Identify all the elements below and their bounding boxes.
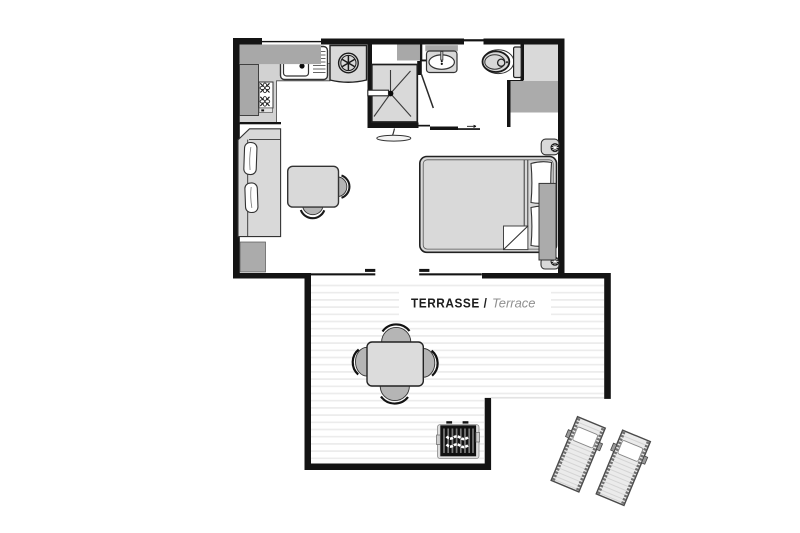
svg-text:TERRASSE /: TERRASSE / — [411, 296, 488, 311]
svg-text:Terrace: Terrace — [492, 296, 536, 311]
